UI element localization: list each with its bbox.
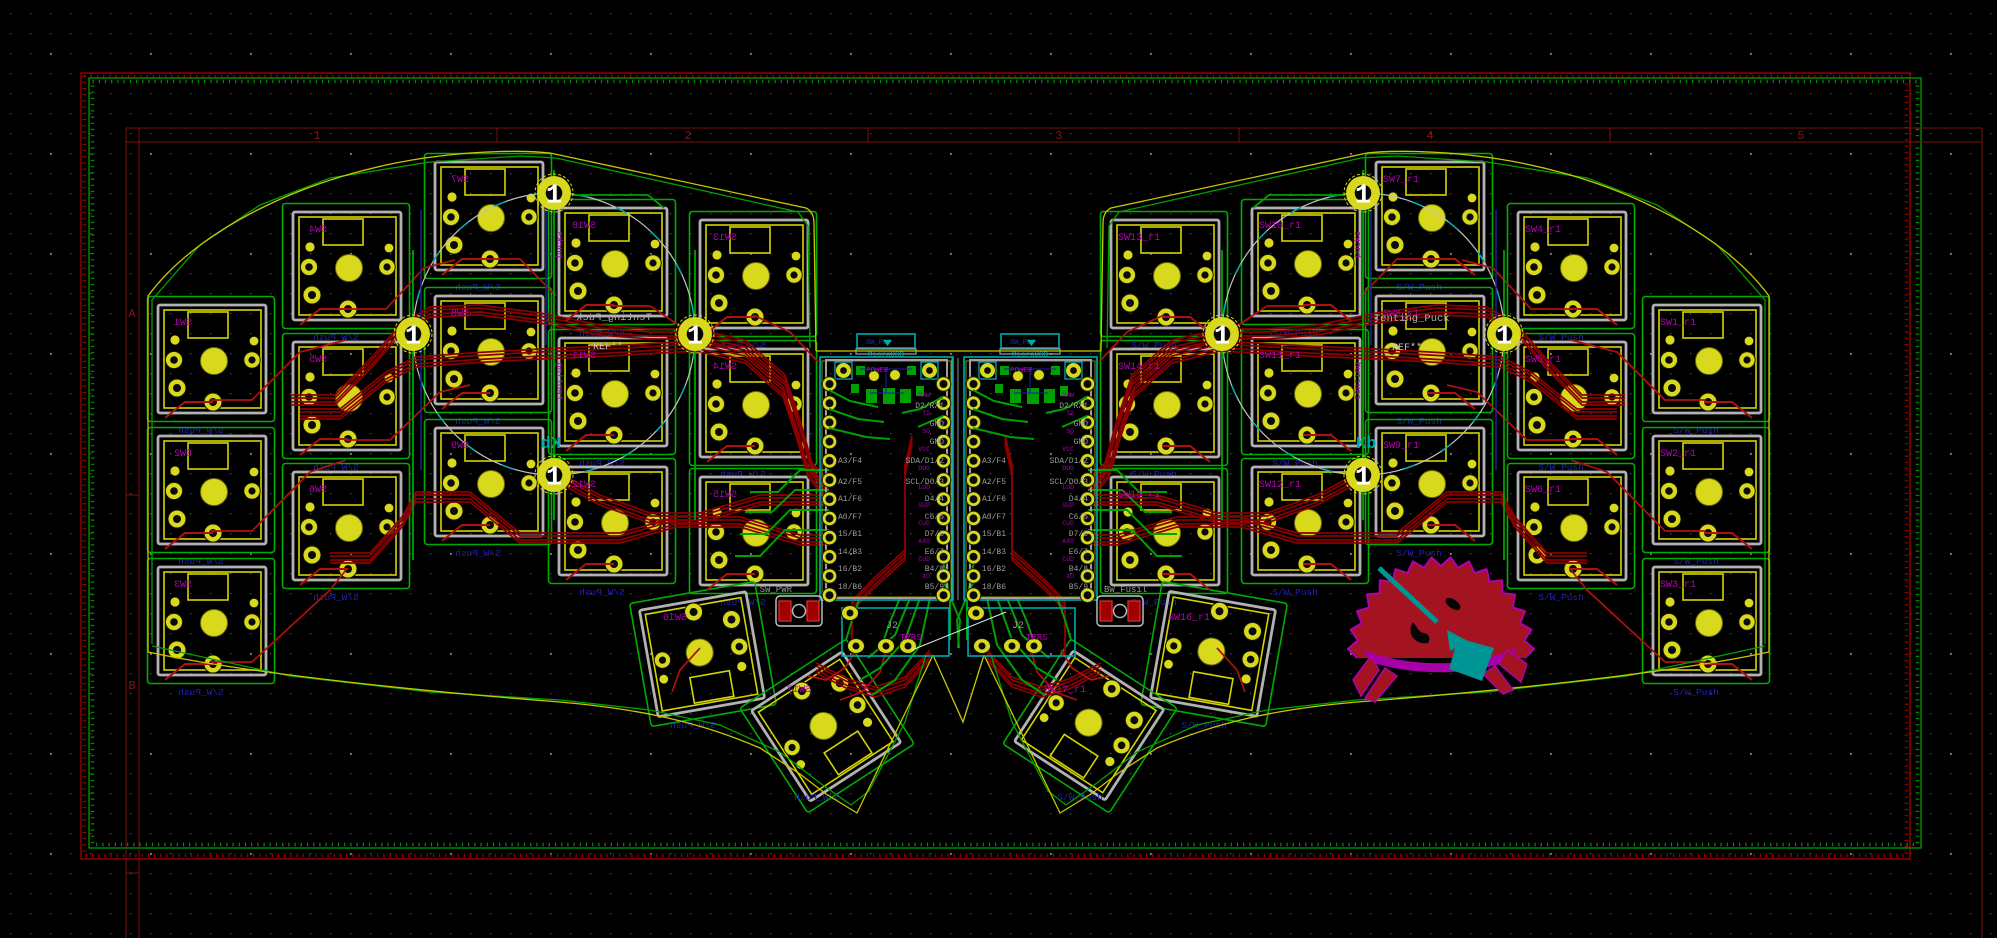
svg-text:SW16: SW16	[663, 613, 687, 624]
svg-text:S/W_Push: S/W_Push	[1272, 587, 1318, 598]
svg-text:SW14: SW14	[713, 362, 737, 373]
svg-text:SW12_r1: SW12_r1	[1259, 480, 1301, 491]
svg-text:SW10: SW10	[572, 221, 596, 232]
svg-text:SW17_r1: SW17_r1	[1044, 685, 1086, 696]
svg-text:SW14_r1: SW14_r1	[1118, 362, 1160, 373]
svg-text:4: 4	[1426, 129, 1433, 143]
svg-text:B: B	[128, 679, 135, 693]
svg-text:2: 2	[684, 129, 691, 143]
svg-text:Kb: Kb	[1356, 435, 1376, 454]
svg-text:Tenting_Puck: Tenting_Puck	[1374, 313, 1450, 325]
svg-text:S/W_Push: S/W_Push	[1673, 687, 1719, 698]
svg-text:S/W_Push: S/W_Push	[1673, 425, 1719, 436]
svg-text:REF**: REF**	[1392, 342, 1422, 354]
svg-text:S/W_Push: S/W_Push	[178, 687, 224, 698]
svg-text:SW15: SW15	[713, 490, 737, 501]
svg-text:SW1_r1: SW1_r1	[1660, 318, 1696, 329]
svg-text:SW13: SW13	[713, 233, 737, 244]
svg-text:S/W_Push: S/W_Push	[455, 416, 501, 427]
svg-text:SW9: SW9	[451, 441, 469, 452]
svg-text:SW9_r1: SW9_r1	[1383, 441, 1419, 452]
svg-text:SW17: SW17	[787, 685, 811, 696]
svg-text:SW_PWR: SW_PWR	[760, 585, 793, 595]
svg-text:SW1: SW1	[174, 318, 192, 329]
svg-text:SW3_r1: SW3_r1	[1660, 580, 1696, 591]
svg-text:SW6_r1: SW6_r1	[1525, 485, 1561, 496]
svg-text:SW15_r1: SW15_r1	[1118, 490, 1160, 501]
svg-text:S/W_Push: S/W_Push	[178, 556, 224, 567]
svg-text:S/W_Push: S/W_Push	[1396, 416, 1442, 427]
svg-text:SW3: SW3	[174, 580, 192, 591]
svg-text:BW_Fusil: BW_Fusil	[1104, 585, 1147, 595]
svg-text:SW7_r1: SW7_r1	[1383, 175, 1419, 186]
svg-text:3: 3	[1055, 129, 1062, 143]
svg-text:SW13_r1: SW13_r1	[1118, 233, 1160, 244]
svg-text:tenting: tenting	[1353, 362, 1363, 400]
svg-text:A: A	[128, 307, 136, 321]
svg-text:SW16_r1: SW16_r1	[1168, 613, 1210, 624]
svg-text:5: 5	[1797, 129, 1804, 143]
svg-text:S/W_Push: S/W_Push	[1396, 548, 1442, 559]
svg-text:S/W_Push: S/W_Push	[579, 587, 625, 598]
svg-text:pucks: pucks	[1353, 231, 1363, 258]
svg-text:S/W_Push: S/W_Push	[1673, 556, 1719, 567]
svg-text:SW11_r1: SW11_r1	[1259, 351, 1301, 362]
svg-text:SW2_r1: SW2_r1	[1660, 449, 1696, 460]
svg-text:S/W_Push: S/W_Push	[1538, 592, 1584, 603]
svg-text:S/W_Push: S/W_Push	[313, 592, 359, 603]
svg-text:SW5: SW5	[309, 355, 327, 366]
svg-text:S/W_Push: S/W_Push	[794, 792, 840, 803]
svg-text:1: 1	[313, 129, 320, 143]
svg-text:S/W_Push: S/W_Push	[178, 425, 224, 436]
svg-text:REF**: REF**	[593, 341, 623, 353]
svg-text:Tenting_Puck: Tenting_Puck	[576, 312, 652, 324]
svg-text:SW10_r1: SW10_r1	[1259, 221, 1301, 232]
svg-text:SW8: SW8	[451, 309, 469, 320]
svg-text:S/W_Push: S/W_Push	[455, 548, 501, 559]
svg-text:SW5_r1: SW5_r1	[1525, 355, 1561, 366]
svg-text:SW4_r1: SW4_r1	[1525, 225, 1561, 236]
svg-text:SW4: SW4	[309, 225, 327, 236]
svg-text:SW12: SW12	[572, 480, 596, 491]
svg-text:SW2: SW2	[174, 449, 192, 460]
svg-text:SW7: SW7	[451, 175, 469, 186]
svg-text:SW6: SW6	[309, 485, 327, 496]
